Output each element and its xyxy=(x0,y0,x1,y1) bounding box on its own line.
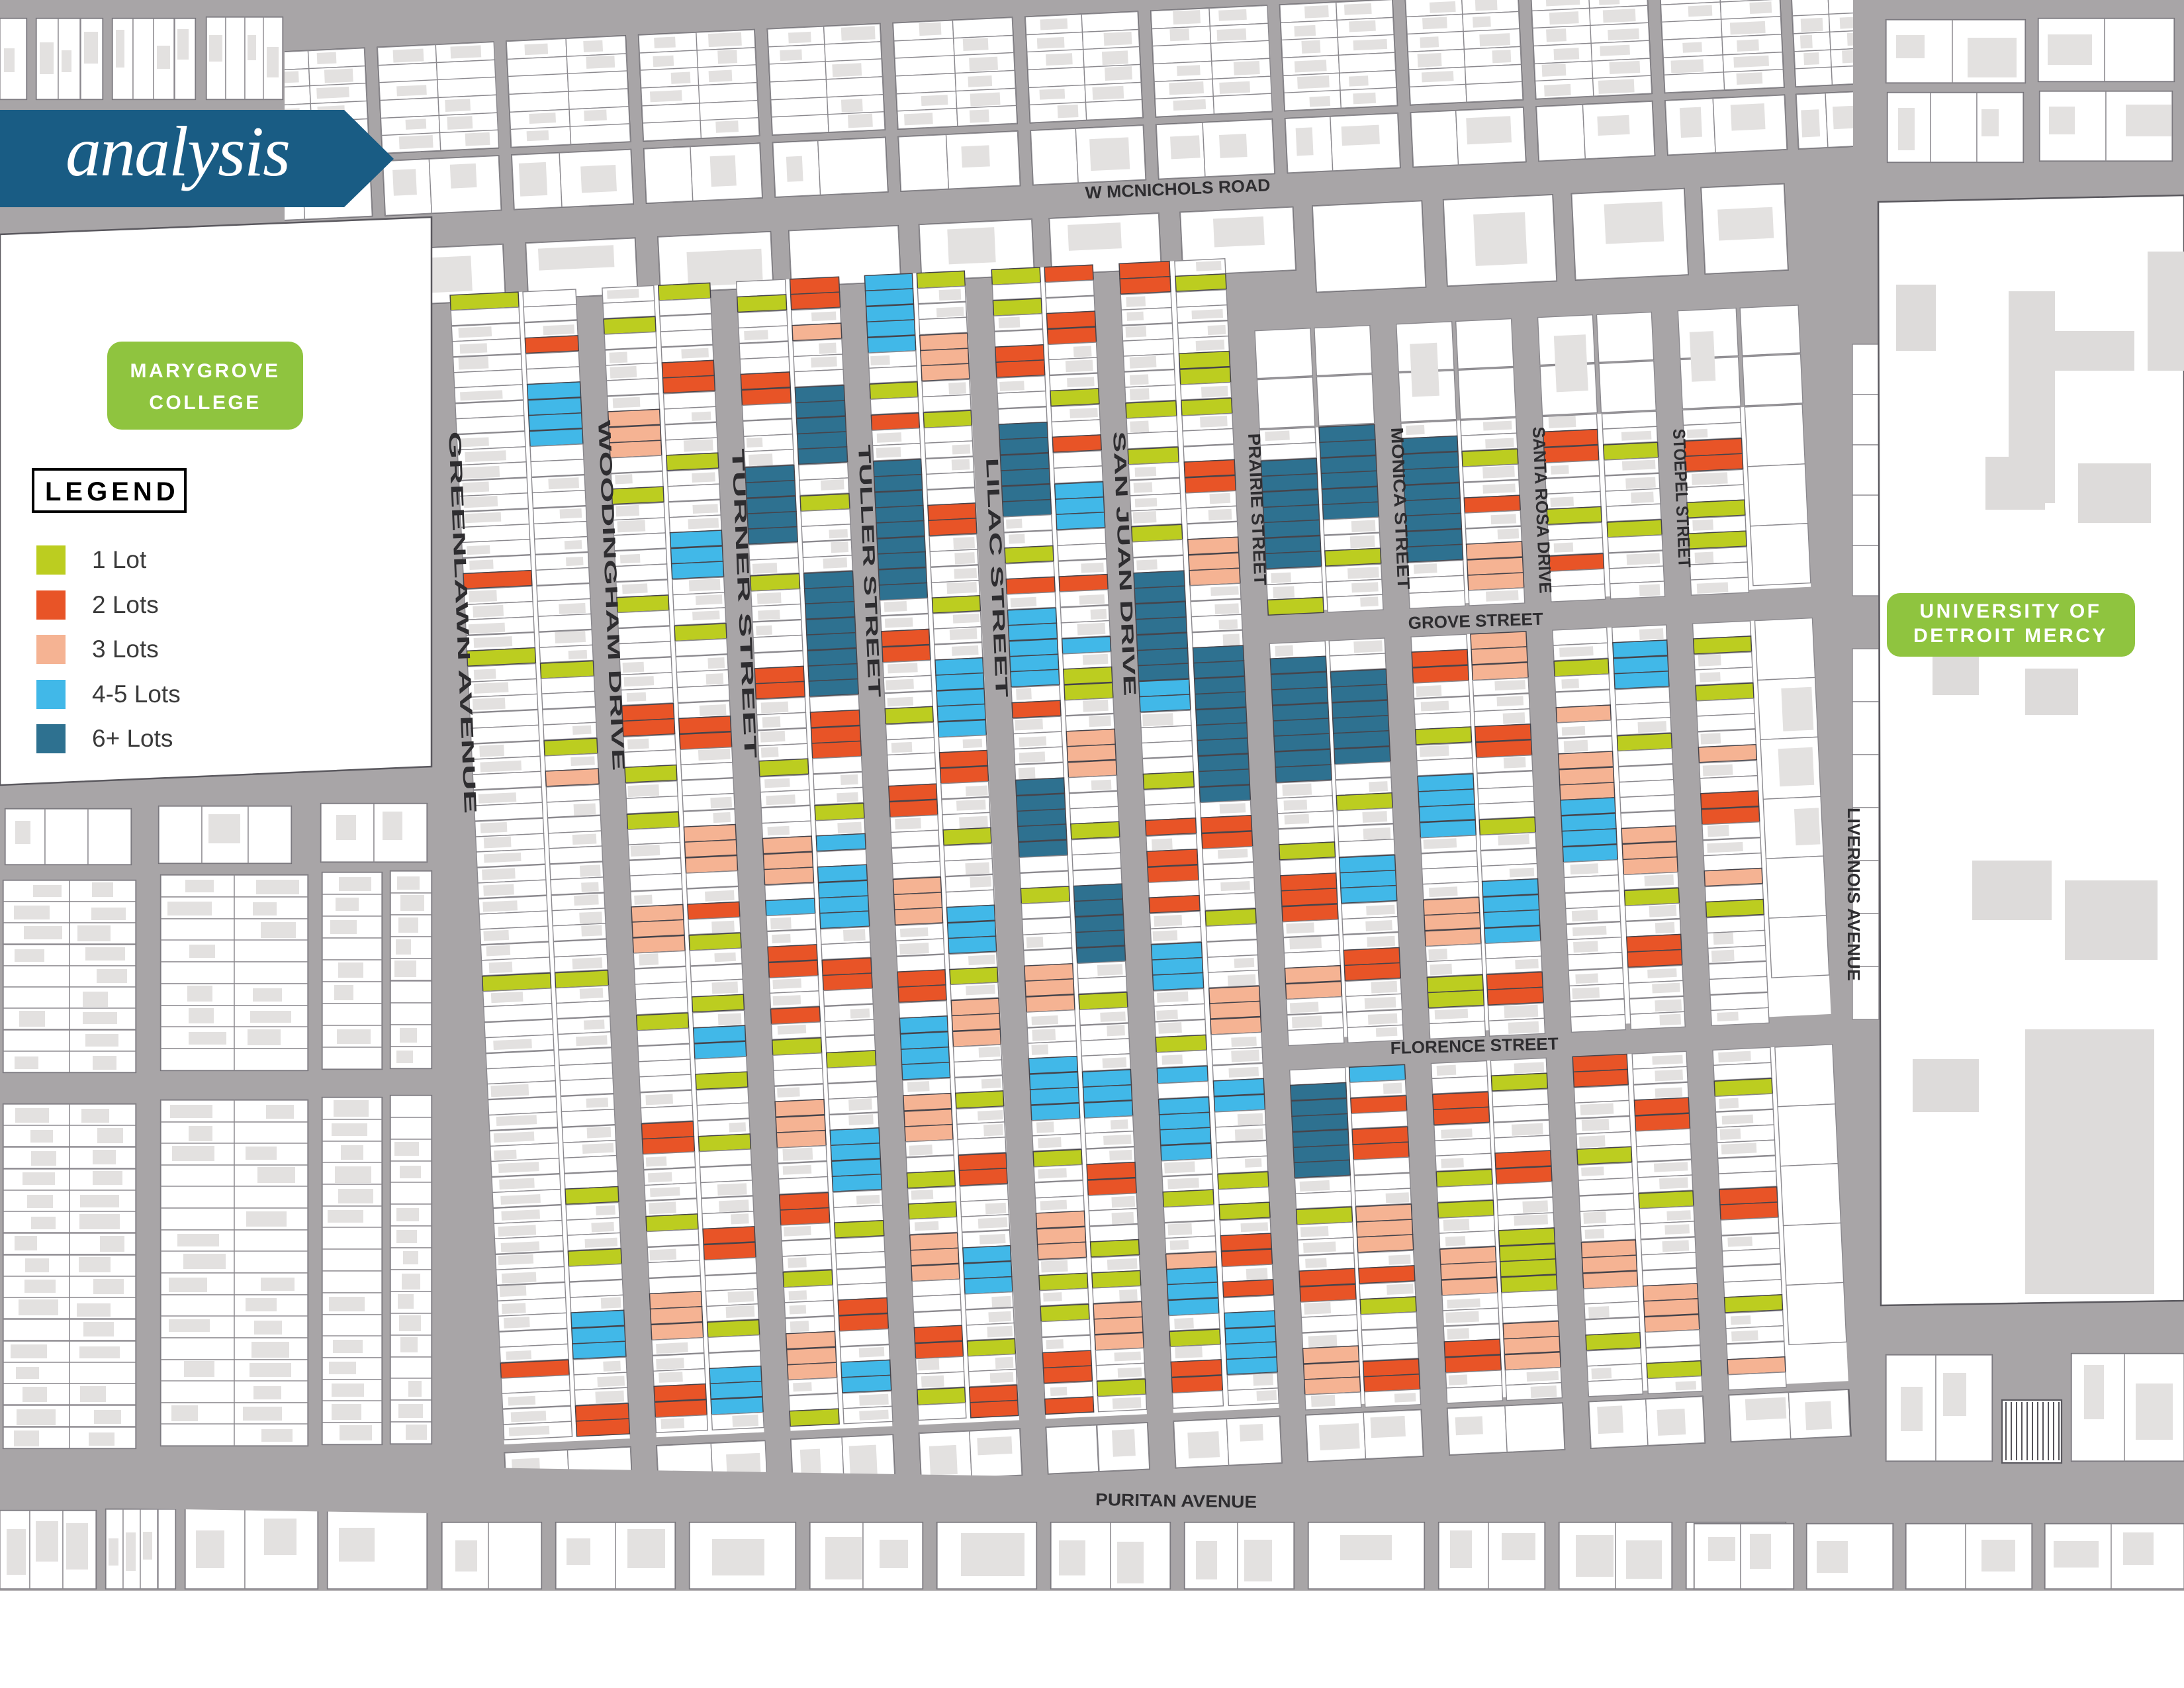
svg-text:PURITAN AVENUE: PURITAN AVENUE xyxy=(1095,1489,1257,1512)
svg-text:analysis: analysis xyxy=(66,113,289,191)
svg-text:1 Lot: 1 Lot xyxy=(92,546,147,573)
svg-text:DETROIT MERCY: DETROIT MERCY xyxy=(1913,625,2108,647)
svg-text:4-5 Lots: 4-5 Lots xyxy=(92,680,181,708)
svg-text:LEGEND: LEGEND xyxy=(45,477,179,506)
svg-text:6+ Lots: 6+ Lots xyxy=(92,725,173,752)
svg-text:LIVERNOIS AVENUE: LIVERNOIS AVENUE xyxy=(1844,808,1864,981)
svg-text:2 Lots: 2 Lots xyxy=(92,591,159,618)
svg-text:3 Lots: 3 Lots xyxy=(92,635,159,663)
svg-text:MARYGROVE: MARYGROVE xyxy=(130,360,280,382)
svg-text:UNIVERSITY OF: UNIVERSITY OF xyxy=(1920,600,2102,622)
svg-text:GROVE STREET: GROVE STREET xyxy=(1408,609,1543,633)
svg-text:COLLEGE: COLLEGE xyxy=(149,392,261,414)
